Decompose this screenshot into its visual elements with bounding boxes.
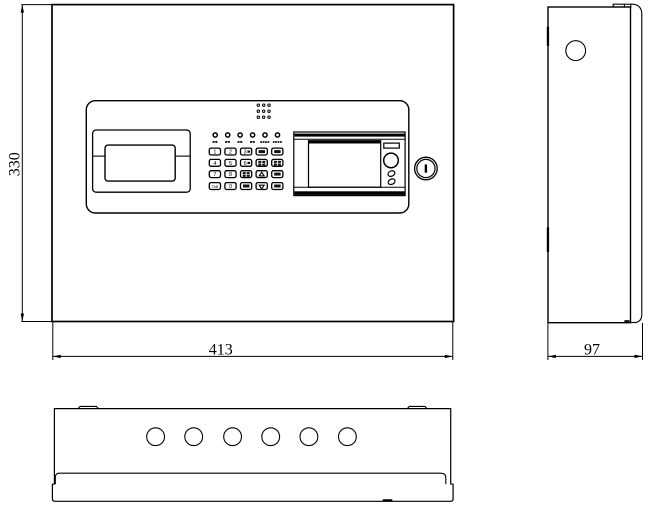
svg-text:330: 330 [7,152,24,176]
svg-text:2: 2 [229,150,232,156]
svg-text:8: 8 [229,172,232,178]
svg-text:97: 97 [584,341,600,358]
svg-text:6: 6 [244,161,247,167]
svg-text:4: 4 [213,161,216,167]
svg-text:TAB: TAB [212,185,219,189]
svg-text:3: 3 [244,150,247,156]
svg-text:413: 413 [209,342,233,359]
svg-text:7: 7 [213,172,216,178]
svg-text:5: 5 [229,161,232,167]
svg-text:1: 1 [213,150,216,156]
svg-text:0: 0 [229,184,232,190]
